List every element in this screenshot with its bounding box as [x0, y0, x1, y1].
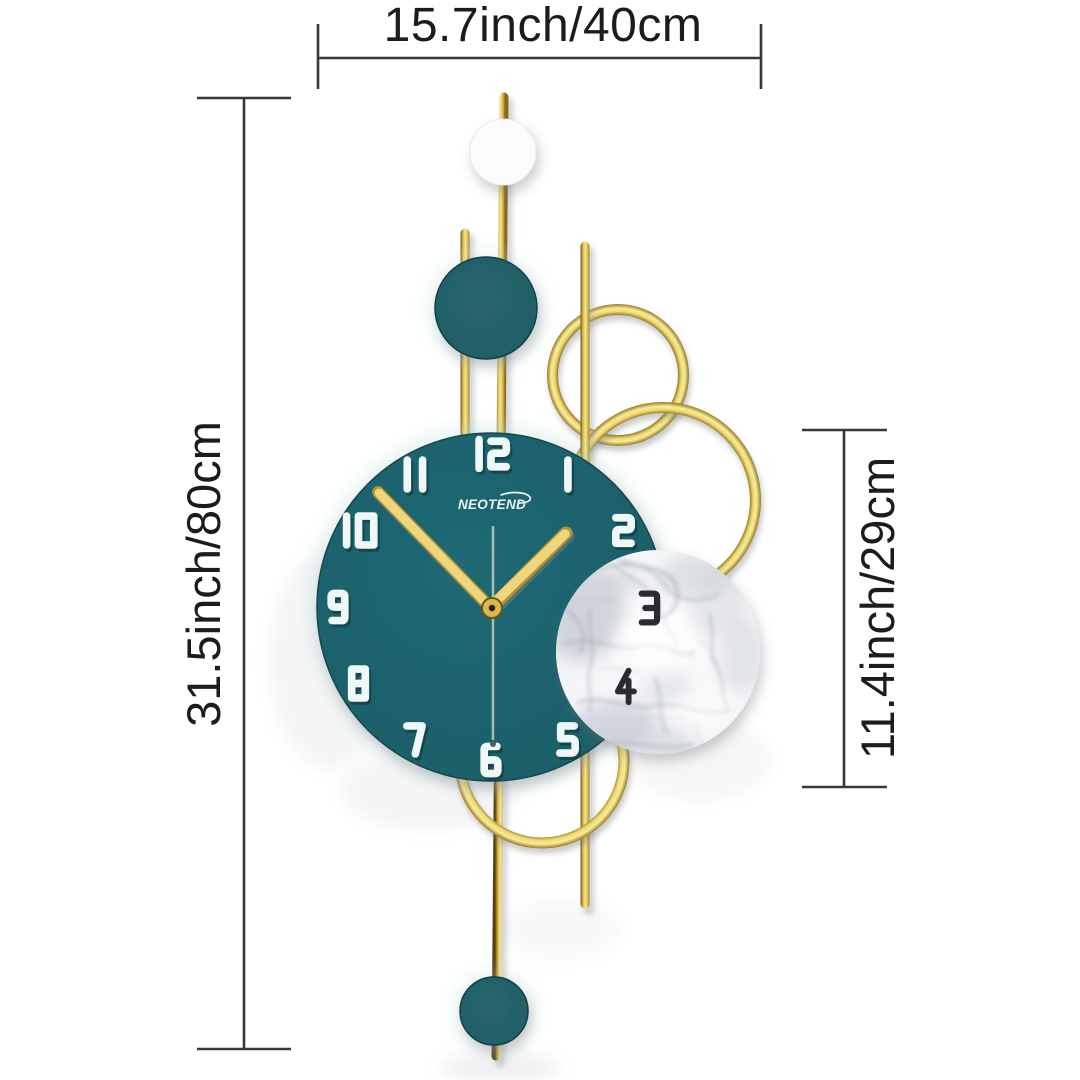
- svg-text:15.7inch/40cm: 15.7inch/40cm: [384, 0, 703, 52]
- svg-text:NEOTEND: NEOTEND: [458, 497, 526, 512]
- svg-text:31.5inch/80cm: 31.5inch/80cm: [177, 421, 230, 727]
- svg-text:11.4inch/29cm: 11.4inch/29cm: [851, 457, 904, 759]
